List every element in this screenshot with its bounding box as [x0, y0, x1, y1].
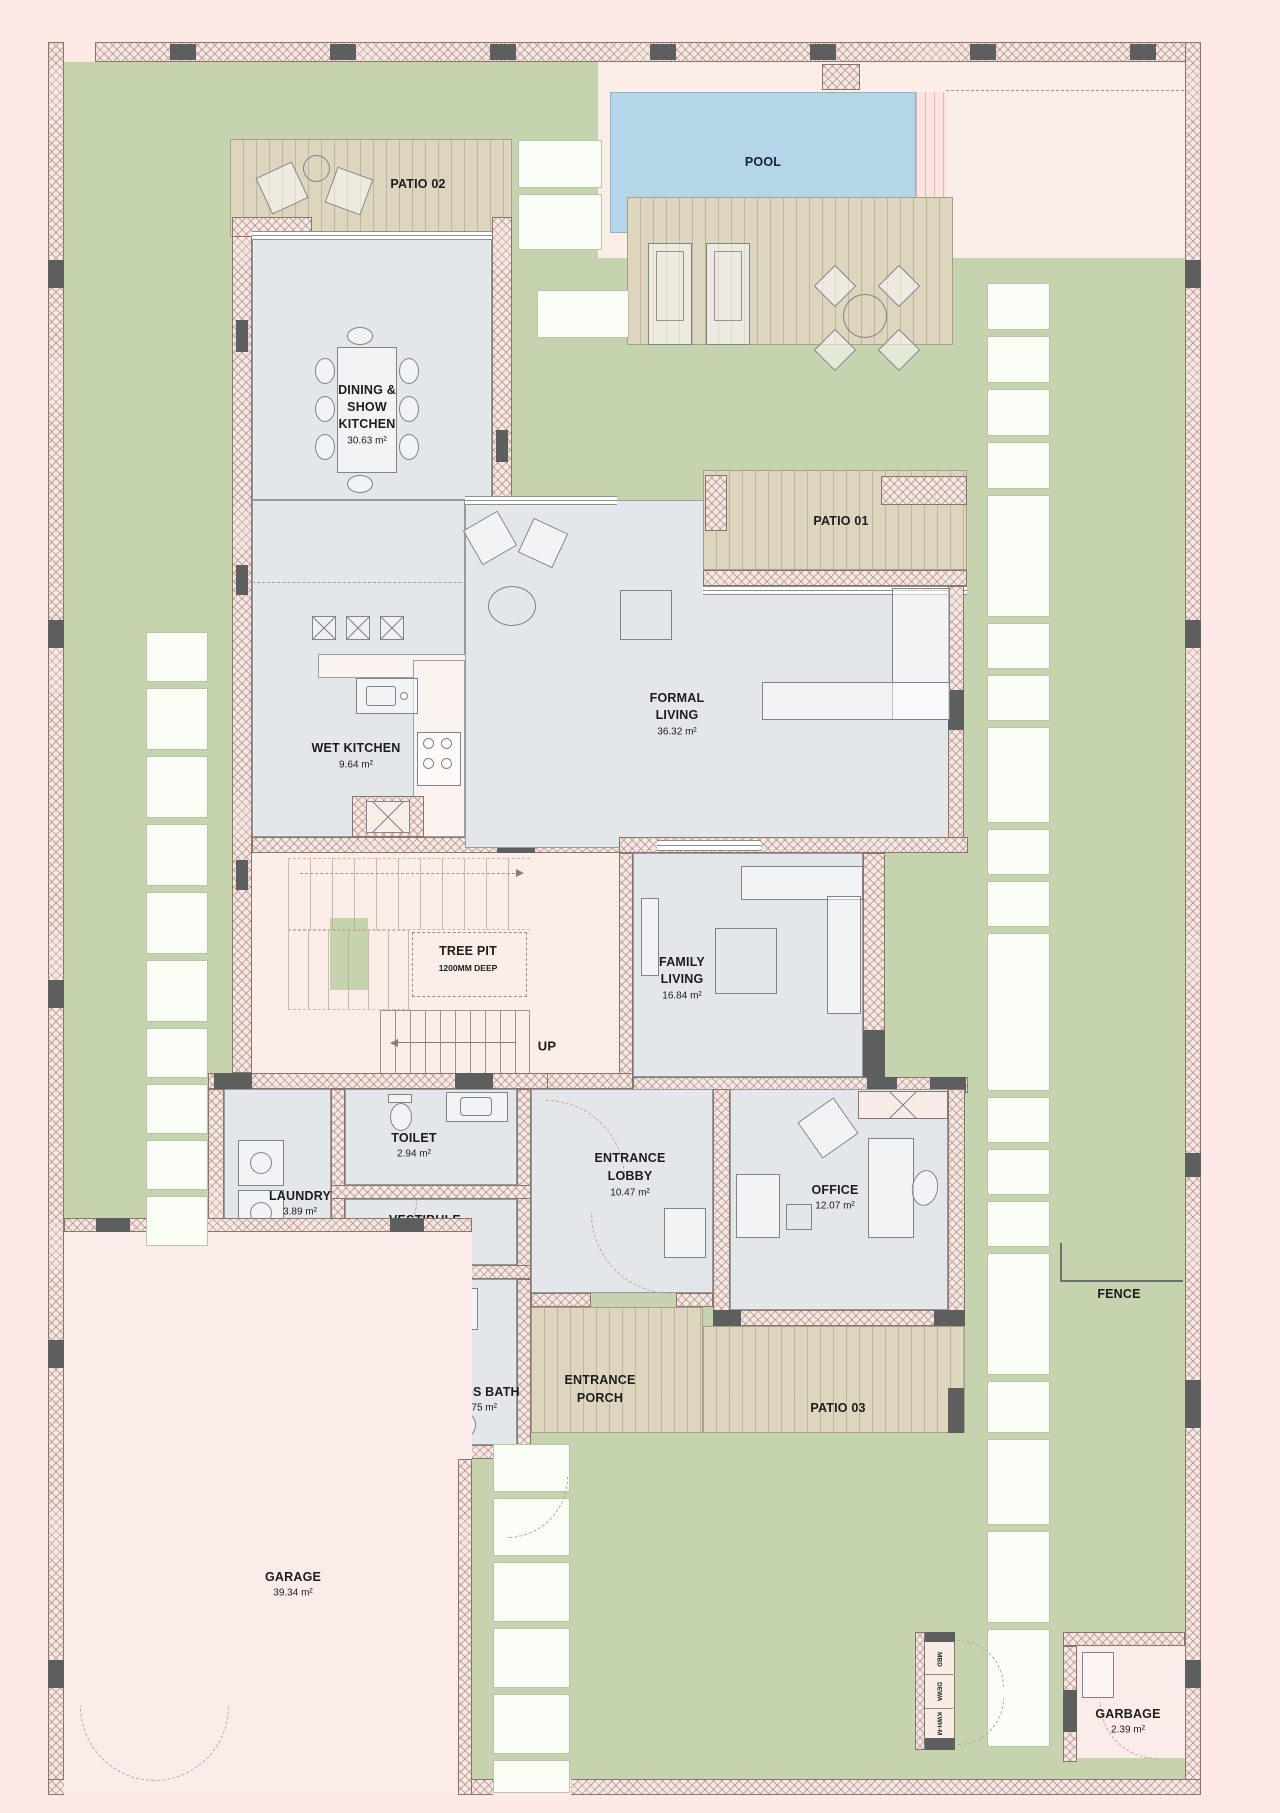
stair-flight-mid — [288, 930, 410, 1010]
wall-segment — [214, 1073, 252, 1089]
patio-02-label: PATIO 02 — [390, 177, 445, 191]
pool-wall-segment — [822, 64, 860, 90]
dining-chair — [315, 396, 335, 422]
wall-segment — [810, 44, 836, 60]
stair-direction-line — [300, 873, 515, 874]
sofa — [827, 896, 861, 1014]
entrance-lobby-label: LOBBY — [608, 1169, 653, 1183]
wall-segment — [1185, 1153, 1201, 1177]
floor-plan: POOL PATIO 02 DINING & SHOW KITCHEN 30.6… — [0, 0, 1280, 1813]
sink-basin — [366, 686, 396, 706]
faucet — [400, 692, 408, 700]
coffee-table — [715, 928, 777, 994]
wall-segment — [1130, 44, 1156, 60]
fence-line — [1060, 1243, 1062, 1280]
paver-tile — [987, 933, 1050, 1091]
patio-wall-segment — [705, 475, 727, 531]
paver-tile — [987, 623, 1050, 669]
entrance-porch-label: ENTRANCE — [564, 1373, 635, 1387]
wall-segment — [948, 690, 964, 730]
paver-tile — [146, 688, 208, 750]
wall-segment — [236, 320, 248, 352]
entrance-porch-deck — [531, 1307, 703, 1433]
wall-segment — [1063, 1690, 1077, 1732]
wall-segment — [650, 44, 676, 60]
house-wall — [948, 1089, 965, 1326]
sliding-door — [657, 840, 761, 851]
paver-tile — [493, 1760, 570, 1793]
service-shaft — [366, 801, 410, 833]
sofa — [762, 682, 950, 720]
tree-pit-depth: 1200MM DEEP — [439, 963, 498, 973]
wall-segment — [863, 1030, 885, 1077]
paver-tile — [146, 1196, 208, 1246]
burner — [423, 758, 434, 769]
paver-tile — [987, 1629, 1050, 1747]
paver-tile — [518, 194, 602, 250]
garbage-label: GARBAGE — [1095, 1707, 1160, 1721]
tree-pit-label: TREE PIT — [439, 944, 497, 958]
wall-segment — [1185, 1380, 1201, 1428]
dining-chair — [315, 434, 335, 460]
paver-tile — [987, 1149, 1050, 1195]
wall-segment — [96, 1218, 130, 1232]
patio-01-label: PATIO 01 — [813, 514, 868, 528]
wall-segment — [48, 620, 64, 648]
window — [252, 231, 492, 240]
paver-tile — [493, 1628, 570, 1688]
lounger-cushion — [656, 251, 684, 321]
office-wardrobe — [858, 1091, 948, 1119]
dining-chair — [347, 475, 373, 493]
wall-segment — [170, 44, 196, 60]
bar-stool — [380, 616, 404, 640]
tv-console — [641, 898, 659, 976]
entrance-lobby-area-value: 10.47 m² — [610, 1188, 649, 1199]
house-wall — [713, 1089, 730, 1326]
formal-living-label: LIVING — [656, 708, 699, 722]
pergola-line — [946, 90, 1184, 91]
bar-stool — [312, 616, 336, 640]
house-wall — [531, 1293, 591, 1307]
paver-tile — [987, 1253, 1050, 1375]
formal-living-label: FORMAL — [650, 691, 705, 705]
office-area-value: 12.07 m² — [815, 1201, 854, 1212]
dining-label: SHOW — [347, 400, 387, 414]
paver-tile — [987, 1531, 1050, 1623]
toilet-wc — [390, 1103, 412, 1131]
family-living-label: FAMILY — [659, 955, 705, 969]
fence-label: FENCE — [1097, 1287, 1140, 1301]
wall-segment — [970, 44, 996, 60]
dining-chair — [399, 434, 419, 460]
dining-area-value: 30.63 m² — [347, 436, 386, 447]
paver-tile — [146, 824, 208, 886]
paver-tile — [146, 1084, 208, 1134]
house-wall — [713, 1310, 965, 1326]
meter-label-kwhm: KWH-M — [925, 1710, 953, 1738]
meter-label-mbd: MBD — [925, 1644, 953, 1675]
wall-segment — [48, 980, 64, 1008]
patio-wall-segment — [881, 476, 967, 505]
house-wall — [331, 1185, 531, 1199]
stair-direction-line — [398, 1042, 516, 1043]
patio-03-label: PATIO 03 — [810, 1401, 865, 1415]
garbage-area-value: 2.39 m² — [1111, 1725, 1145, 1736]
paver-tile — [987, 389, 1050, 436]
garbage-wall — [1063, 1632, 1185, 1646]
up-label: UP — [538, 1039, 556, 1054]
outdoor-table — [843, 294, 887, 338]
dining-label: DINING & — [338, 383, 396, 397]
wall-segment — [390, 1218, 424, 1232]
dining-chair — [315, 358, 335, 384]
paver-tile — [987, 1201, 1050, 1247]
paver-tile — [146, 632, 208, 682]
wall-segment — [48, 1340, 64, 1368]
garage-area-value: 39.34 m² — [273, 1588, 312, 1599]
boundary-wall-top — [95, 42, 1200, 62]
house-wall — [458, 1459, 472, 1795]
toilet-area-value: 2.94 m² — [397, 1149, 431, 1160]
center-table — [620, 590, 672, 640]
lobby-armchair — [664, 1208, 706, 1258]
burner — [441, 758, 452, 769]
pool-label: POOL — [745, 155, 781, 169]
paver-tile — [987, 727, 1050, 823]
paver-tile — [146, 960, 208, 1022]
paver-tile — [493, 1562, 570, 1622]
dining-label: KITCHEN — [339, 417, 396, 431]
stair-flight-upper — [288, 858, 530, 930]
paver-tile — [987, 675, 1050, 721]
wall-segment — [925, 1632, 955, 1642]
paver-tile — [987, 283, 1050, 330]
paver-tile — [493, 1694, 570, 1754]
washer-door — [250, 1152, 272, 1174]
house-wall — [619, 853, 633, 1093]
paver-tile — [146, 892, 208, 954]
stair-arrow — [390, 1039, 398, 1047]
paver-tile — [987, 442, 1050, 489]
wall-segment — [236, 860, 248, 890]
coffee-table — [488, 586, 536, 626]
meter-box-wall — [915, 1632, 925, 1750]
patio-03-deck — [703, 1326, 965, 1433]
toilet-basin — [460, 1097, 492, 1116]
wall-segment — [330, 44, 356, 60]
stair-flight-lower — [380, 1010, 530, 1077]
office-sofa — [736, 1174, 780, 1238]
wall-segment — [48, 1660, 64, 1688]
boundary-wall-right — [1185, 42, 1201, 1795]
wall-segment — [490, 44, 516, 60]
dining-chair — [347, 327, 373, 345]
paver-tile — [987, 1439, 1050, 1525]
paver-tile — [146, 1140, 208, 1190]
paver-tile — [987, 336, 1050, 383]
paver-tile — [146, 756, 208, 818]
entrance-porch-label: PORCH — [577, 1391, 623, 1405]
office-side-table — [786, 1204, 812, 1230]
wall-segment — [948, 1388, 964, 1433]
paver-tile — [987, 881, 1050, 927]
toilet-label: TOILET — [391, 1131, 436, 1145]
patio-side-table — [303, 155, 330, 182]
wall-segment — [455, 1073, 493, 1089]
burner — [423, 738, 434, 749]
wall-segment — [236, 565, 248, 595]
wall-segment — [48, 260, 64, 288]
window — [465, 496, 617, 505]
garage-label: GARAGE — [265, 1570, 321, 1584]
family-living-area-value: 16.84 m² — [662, 991, 701, 1002]
sofa — [741, 866, 863, 900]
dining-chair — [399, 358, 419, 384]
fence-line — [1060, 1280, 1183, 1282]
laundry-label: LAUNDRY — [269, 1189, 331, 1203]
office-desk — [868, 1138, 914, 1238]
house-wall — [208, 1073, 548, 1089]
meter-label-dewa: DEWA — [925, 1676, 953, 1709]
entrance-lobby-label: ENTRANCE — [594, 1151, 665, 1165]
house-wall — [676, 1293, 713, 1307]
wall-segment — [934, 1310, 965, 1326]
paver-tile — [987, 829, 1050, 875]
wet-kitchen-area-value: 9.64 m² — [339, 760, 373, 771]
boundary-wall-left — [48, 42, 64, 1795]
laundry-area-value: 3.89 m² — [283, 1207, 317, 1218]
wet-kitchen-label: WET KITCHEN — [312, 741, 401, 755]
garbage-bin — [1082, 1652, 1114, 1698]
paver-tile — [537, 290, 629, 338]
wall-segment — [1185, 1660, 1201, 1688]
paver-tile — [518, 140, 602, 188]
dining-chair — [399, 396, 419, 422]
lounger-cushion — [714, 251, 742, 321]
house-wall — [517, 1279, 531, 1459]
paver-tile — [987, 1381, 1050, 1433]
paver-tile — [987, 1097, 1050, 1143]
bar-stool — [346, 616, 370, 640]
family-living-label: LIVING — [661, 972, 704, 986]
formal-living-area-value: 36.32 m² — [657, 727, 696, 738]
office-label: OFFICE — [811, 1183, 858, 1197]
wall-segment — [925, 1738, 955, 1750]
paver-tile — [146, 1028, 208, 1078]
toilet-cistern — [388, 1094, 412, 1103]
ceiling-change-line — [252, 582, 492, 583]
wall-segment — [1185, 620, 1201, 648]
wall-segment — [1185, 260, 1201, 288]
wall-segment — [713, 1310, 741, 1326]
house-wall — [703, 570, 967, 586]
burner — [441, 738, 452, 749]
stair-arrow — [516, 869, 524, 877]
paver-tile — [987, 495, 1050, 617]
wall-segment — [496, 430, 508, 462]
